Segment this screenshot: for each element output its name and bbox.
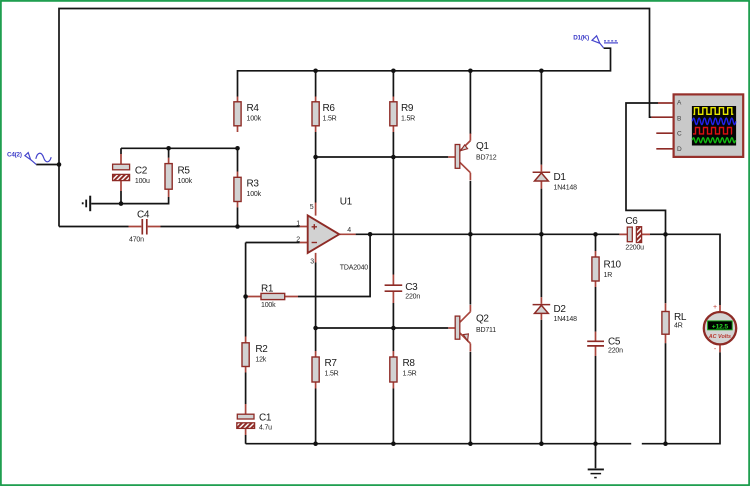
svg-text:R10: R10 (604, 260, 622, 271)
svg-text:R3: R3 (247, 179, 260, 190)
svg-text:1.5R: 1.5R (323, 116, 337, 123)
svg-text:BD711: BD711 (476, 327, 496, 334)
svg-text:4: 4 (347, 227, 351, 234)
svg-text:100k: 100k (261, 302, 276, 309)
svg-text:1.5R: 1.5R (325, 371, 339, 378)
svg-text:220n: 220n (608, 348, 623, 355)
svg-text:C: C (677, 131, 682, 138)
svg-text:D1: D1 (554, 172, 567, 183)
svg-text:Q1: Q1 (476, 141, 489, 152)
svg-text:100k: 100k (247, 191, 262, 198)
svg-text:1: 1 (296, 220, 300, 227)
svg-text:1N4148: 1N4148 (554, 316, 578, 323)
svg-text:BD712: BD712 (476, 155, 497, 162)
svg-text:R5: R5 (178, 166, 191, 177)
svg-text:C1: C1 (259, 413, 272, 424)
svg-text:D2: D2 (554, 304, 567, 315)
svg-text:+12.5: +12.5 (712, 323, 729, 330)
svg-text:R9: R9 (401, 103, 414, 114)
svg-text:1N4148: 1N4148 (554, 185, 578, 192)
svg-text:Q2: Q2 (476, 314, 489, 325)
svg-text:D1(K): D1(K) (573, 35, 589, 42)
svg-text:TDA2040: TDA2040 (340, 264, 368, 271)
svg-text:4R: 4R (674, 323, 683, 330)
svg-text:1R: 1R (604, 272, 613, 279)
svg-text:R1: R1 (261, 284, 274, 295)
svg-text:RL: RL (674, 312, 687, 323)
svg-text:R2: R2 (255, 344, 268, 355)
svg-text:C2: C2 (135, 166, 148, 177)
svg-text:C4: C4 (137, 210, 150, 221)
svg-text:+: + (713, 304, 717, 311)
svg-text:100k: 100k (247, 116, 262, 123)
svg-text:4.7u: 4.7u (259, 425, 272, 432)
svg-text:1.5R: 1.5R (401, 116, 415, 123)
svg-text:AC Volts: AC Volts (708, 334, 731, 340)
svg-text:100k: 100k (178, 178, 193, 185)
svg-text:R7: R7 (325, 358, 338, 369)
svg-text:C3: C3 (405, 282, 418, 293)
svg-text:470n: 470n (129, 237, 144, 244)
svg-text:1.5R: 1.5R (403, 371, 417, 378)
svg-text:R6: R6 (323, 103, 336, 114)
svg-text:B: B (677, 116, 681, 123)
svg-text:A: A (677, 100, 682, 107)
svg-text:C4(2): C4(2) (7, 151, 22, 158)
svg-text:12k: 12k (255, 357, 266, 364)
svg-text:2: 2 (296, 236, 300, 243)
svg-text:5: 5 (310, 204, 314, 211)
svg-text:C6: C6 (625, 216, 638, 227)
svg-text:C5: C5 (608, 337, 621, 348)
svg-text:D: D (677, 146, 682, 153)
svg-text:R8: R8 (403, 358, 416, 369)
svg-text:U1: U1 (340, 197, 353, 208)
svg-text:220n: 220n (405, 294, 420, 301)
svg-text:2200u: 2200u (625, 245, 644, 252)
svg-text:R4: R4 (247, 103, 260, 114)
svg-text:100u: 100u (135, 178, 150, 185)
svg-text:3: 3 (310, 258, 314, 265)
